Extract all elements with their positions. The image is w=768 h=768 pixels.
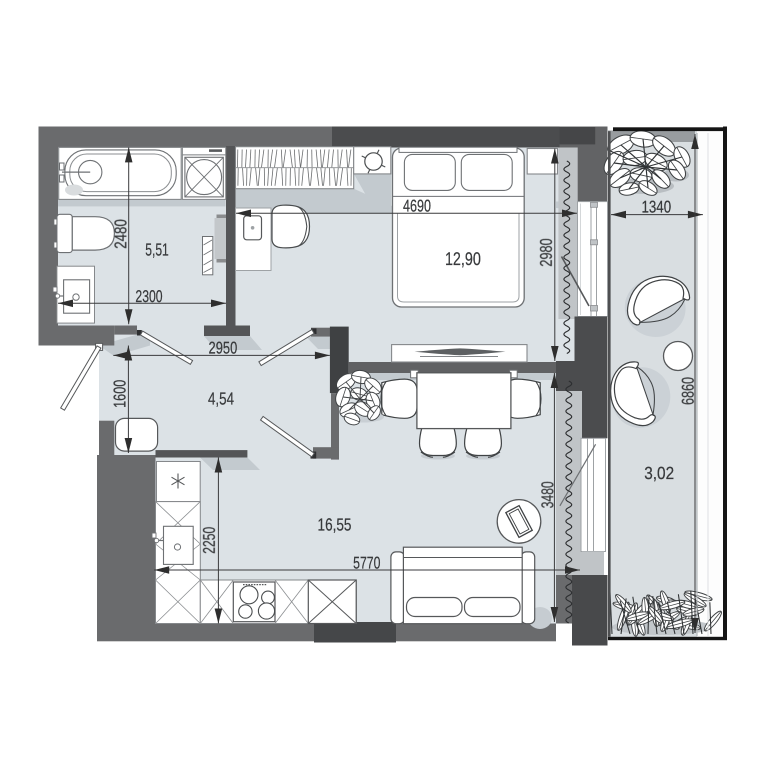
svg-text:2250: 2250	[200, 527, 219, 554]
svg-text:1600: 1600	[110, 380, 129, 408]
svg-text:5,51: 5,51	[145, 239, 169, 259]
svg-text:1340: 1340	[641, 197, 671, 216]
svg-text:16,55: 16,55	[318, 515, 352, 535]
svg-text:2300: 2300	[135, 287, 162, 306]
svg-text:3,02: 3,02	[644, 463, 674, 483]
svg-text:6860: 6860	[679, 377, 698, 405]
svg-text:2480: 2480	[111, 219, 130, 249]
svg-text:5770: 5770	[353, 553, 380, 572]
svg-text:4,54: 4,54	[208, 389, 234, 409]
svg-text:4690: 4690	[403, 196, 431, 215]
svg-text:2950: 2950	[209, 338, 238, 357]
svg-text:2980: 2980	[537, 238, 556, 266]
svg-text:3480: 3480	[538, 481, 557, 508]
svg-text:12,90: 12,90	[445, 248, 481, 269]
